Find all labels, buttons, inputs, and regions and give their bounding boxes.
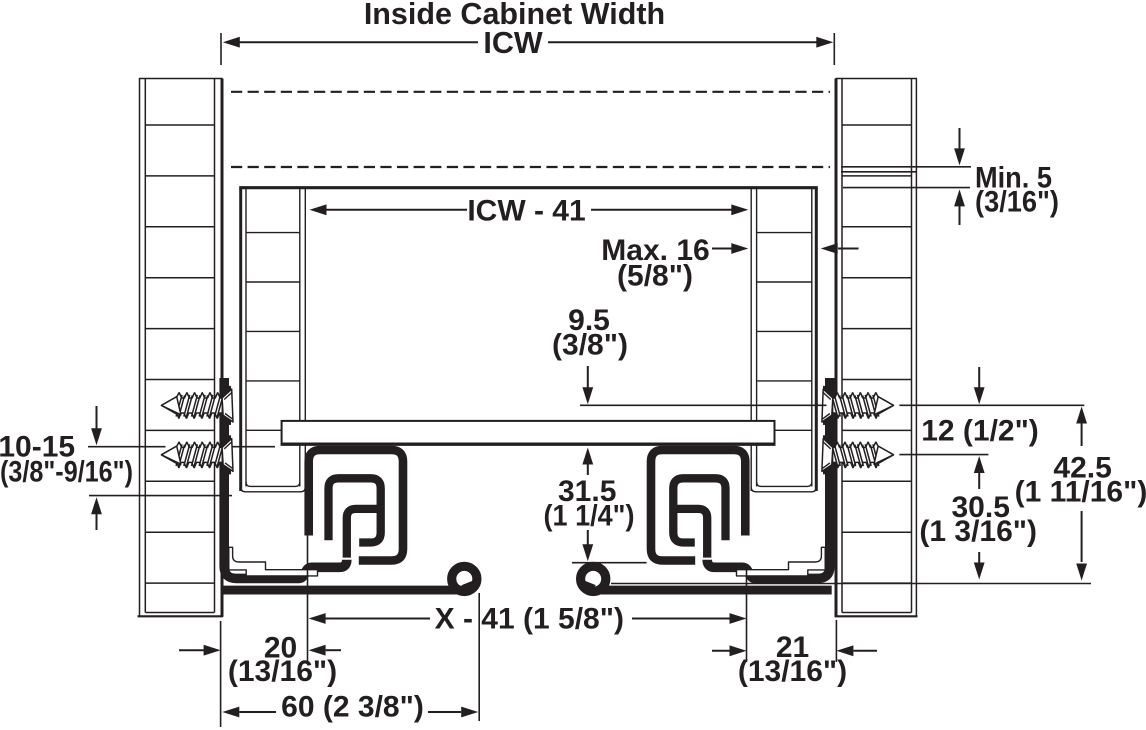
svg-text:(1 1/4"): (1 1/4") — [544, 500, 635, 533]
svg-text:ICW - 41: ICW - 41 — [467, 195, 585, 228]
svg-text:(3/8"): (3/8") — [552, 329, 628, 362]
svg-text:(1 3/16"): (1 3/16") — [919, 515, 1037, 548]
svg-text:(3/16"): (3/16") — [975, 186, 1059, 219]
svg-text:(5/8"): (5/8") — [617, 260, 693, 293]
svg-text:60 (2 3/8"): 60 (2 3/8") — [281, 691, 424, 724]
svg-text:X - 41 (1 5/8"): X - 41 (1 5/8") — [435, 602, 624, 635]
svg-text:(13/16"): (13/16") — [738, 655, 847, 688]
svg-text:12 (1/2"): 12 (1/2") — [921, 415, 1039, 448]
svg-text:(3/8"-9/16"): (3/8"-9/16") — [0, 456, 133, 489]
svg-text:ICW: ICW — [483, 26, 543, 60]
svg-text:(13/16"): (13/16") — [228, 655, 337, 688]
svg-text:(1 11/16"): (1 11/16") — [1015, 476, 1146, 509]
